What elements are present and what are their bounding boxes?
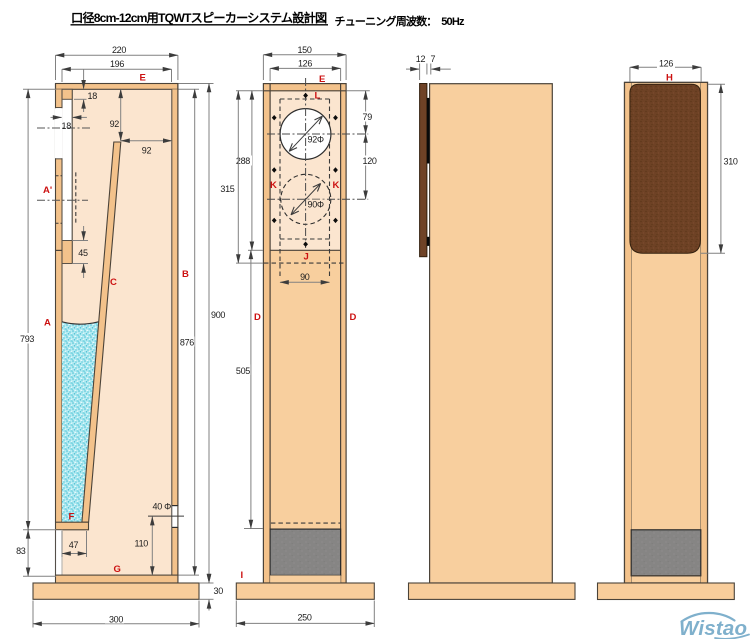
svg-text:150: 150 [297,45,311,55]
svg-text:315: 315 [220,184,234,194]
svg-text:口径8cm-12cm用TQWTスピーカーシステム設計図: 口径8cm-12cm用TQWTスピーカーシステム設計図 [71,10,327,25]
svg-text:F: F [69,512,75,523]
svg-text:79: 79 [363,112,373,122]
svg-text:196: 196 [110,59,124,69]
svg-text:110: 110 [135,539,149,549]
svg-text:18: 18 [88,91,98,101]
svg-text:120: 120 [363,156,377,166]
svg-text:J: J [304,252,309,263]
svg-text:C: C [110,277,117,288]
svg-text:92Φ: 92Φ [308,135,324,145]
svg-text:92: 92 [142,146,152,156]
svg-text:220: 220 [112,45,126,55]
svg-text:18: 18 [62,121,72,131]
svg-text:126: 126 [659,59,673,69]
svg-text:K: K [333,180,340,191]
svg-text:D: D [254,312,261,323]
svg-text:A': A' [43,185,52,196]
svg-text:D: D [350,312,357,323]
svg-text:250: 250 [297,612,311,622]
svg-text:126: 126 [298,58,312,68]
svg-text:12: 12 [416,54,426,64]
svg-text:45: 45 [78,248,88,258]
svg-text:900: 900 [211,310,225,320]
svg-text:Wistao: Wistao [679,617,747,639]
svg-text:K: K [270,180,277,191]
svg-text:A: A [44,318,51,329]
svg-text:83: 83 [16,546,26,556]
svg-text:I: I [241,570,244,581]
svg-text:47: 47 [69,540,79,550]
svg-text:90: 90 [300,272,310,282]
svg-text:B: B [182,269,189,280]
svg-text:チューニング周波数： 50Hz: チューニング周波数： 50Hz [335,14,465,28]
svg-text:L: L [315,91,321,102]
svg-text:793: 793 [20,334,34,344]
svg-text:E: E [319,74,325,85]
svg-text:E: E [140,73,146,84]
svg-text:40 Φ: 40 Φ [153,502,172,512]
svg-text:300: 300 [109,615,123,625]
svg-text:310: 310 [724,157,738,167]
svg-text:H: H [666,73,673,84]
svg-text:7: 7 [430,54,435,64]
svg-text:90Φ: 90Φ [308,200,324,210]
svg-text:505: 505 [236,366,250,376]
svg-text:G: G [114,564,121,575]
svg-text:876: 876 [180,338,194,348]
svg-text:30: 30 [214,586,224,596]
svg-text:92: 92 [110,119,120,129]
